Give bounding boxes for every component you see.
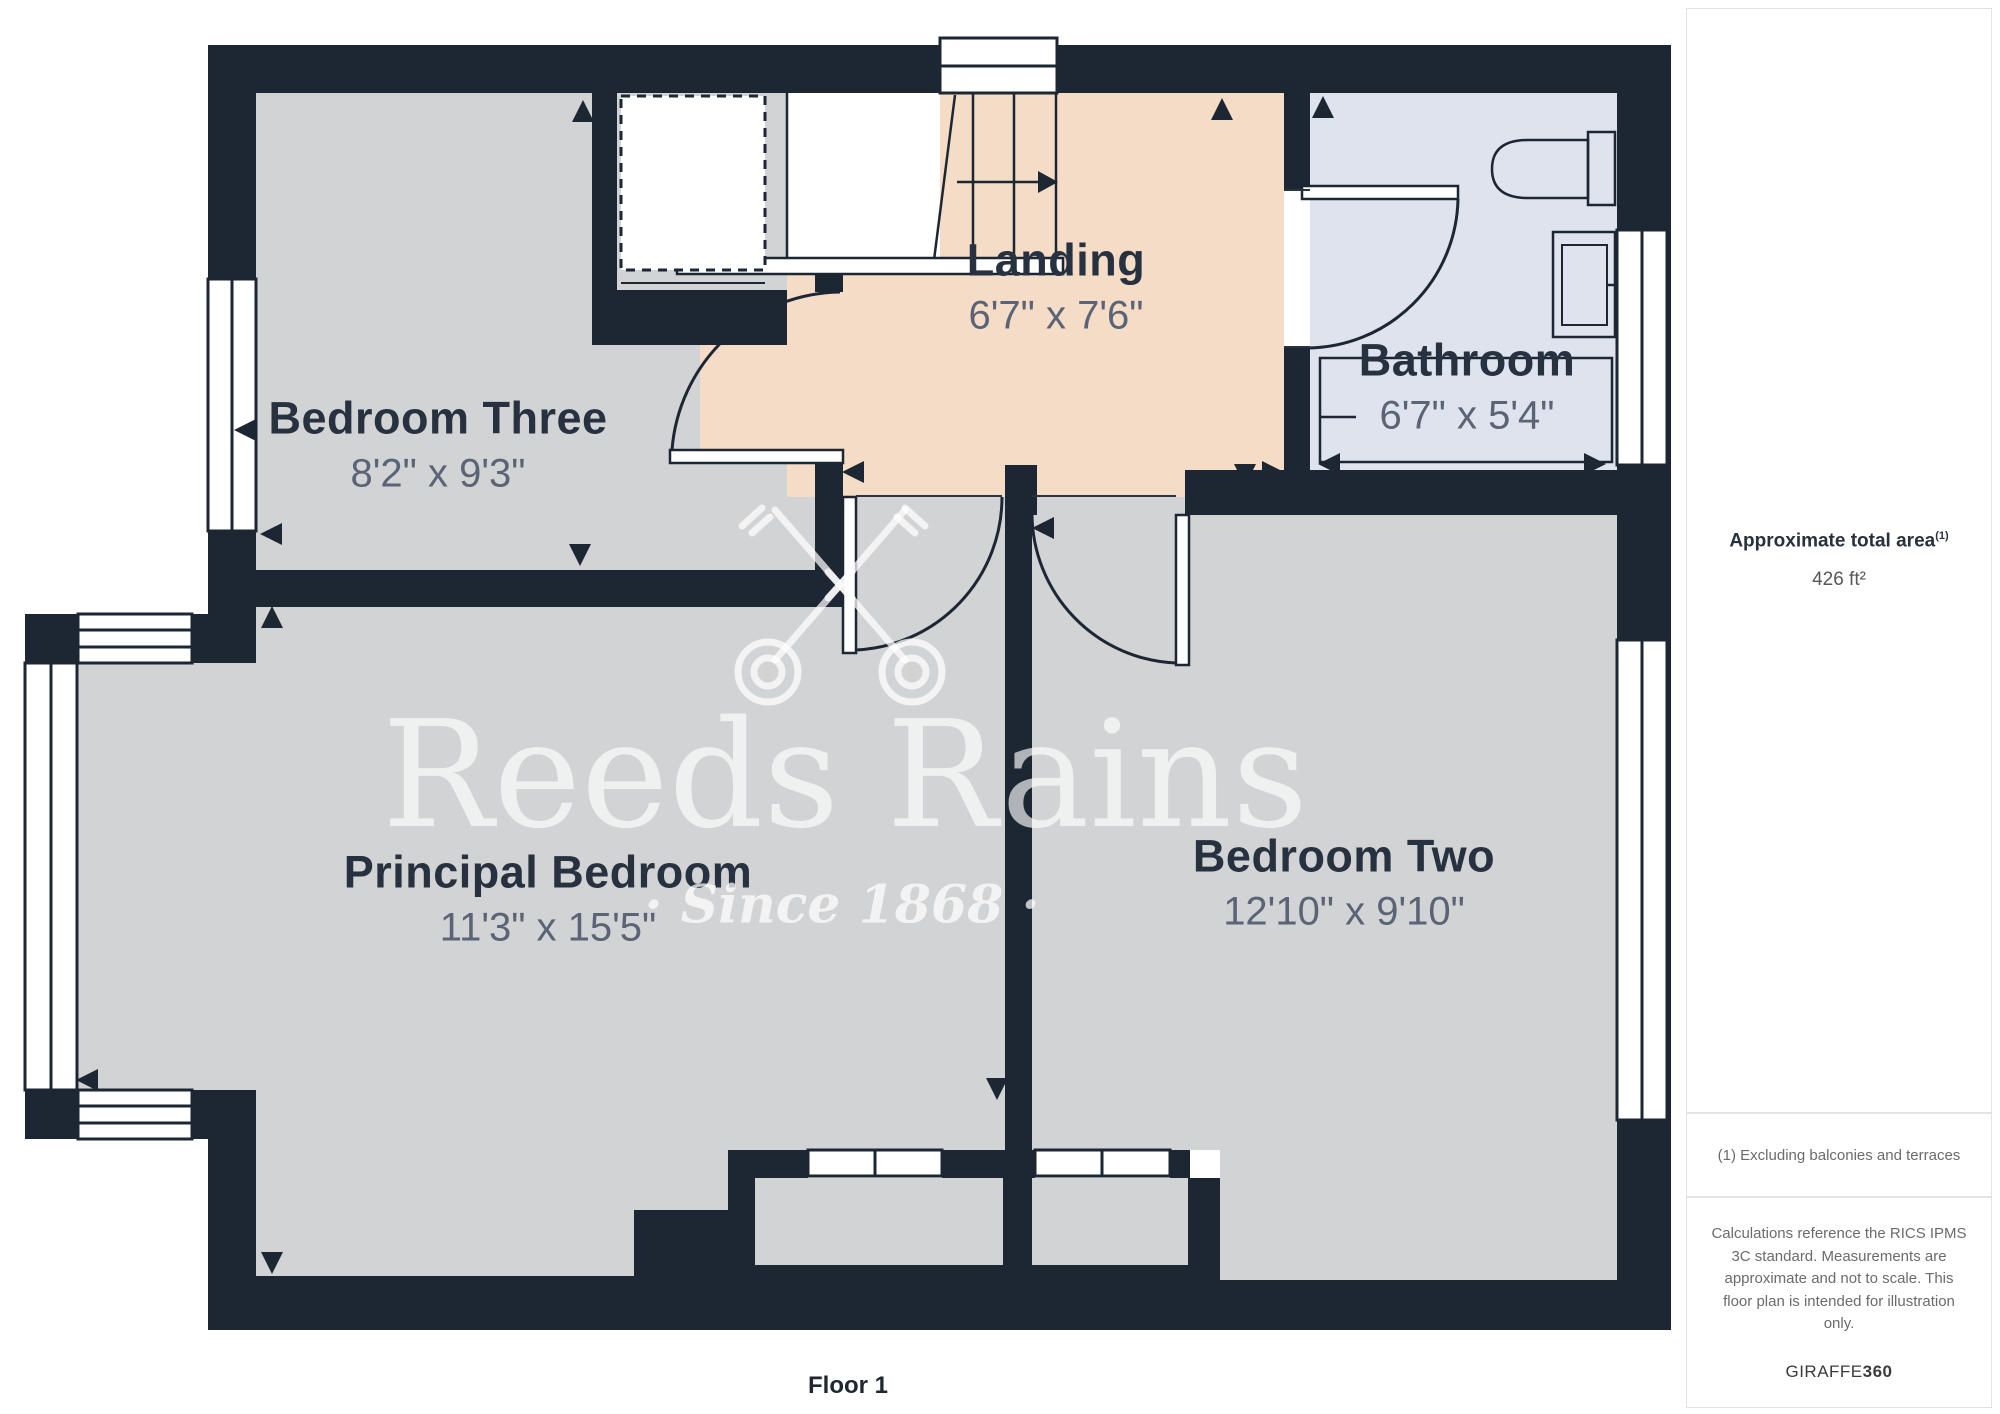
bay-floor <box>77 663 256 1090</box>
room-label-bathroom: Bathroom 6'7" x 5'4" <box>1359 335 1576 437</box>
footnote-text: (1) Excluding balconies and terraces <box>1700 1147 1979 1164</box>
stairwell-void <box>787 93 940 270</box>
disclaimer-text: Calculations reference the RICS IPMS 3C … <box>1708 1223 1970 1336</box>
room-dims: 6'7" x 5'4" <box>1359 393 1576 437</box>
room-name: Bathroom <box>1359 335 1576 385</box>
area-value: 426 ft² <box>1812 569 1866 591</box>
window-alcove-right <box>1032 1178 1188 1265</box>
room-label-bedroom-two: Bedroom Two 12'10" x 9'10" <box>1193 831 1495 933</box>
giraffe360-logo: GIRAFFE360 <box>1785 1362 1892 1382</box>
floorplan-page: Bedroom Three 8'2" x 9'3" Landing 6'7" x… <box>0 0 2000 1414</box>
sidebar-area-panel: Approximate total area(1) 426 ft² <box>1686 8 1992 1113</box>
window-principal-bottom <box>808 1150 942 1176</box>
giraffe360-logo-suffix: 360 <box>1863 1362 1893 1381</box>
sidebar-footnote-panel: (1) Excluding balconies and terraces <box>1686 1113 1992 1197</box>
room-dims: 12'10" x 9'10" <box>1193 889 1495 933</box>
room-label-principal-bedroom: Principal Bedroom 11'3" x 15'5" <box>344 847 753 949</box>
window-bedroom-two-bottom <box>1035 1150 1170 1176</box>
bedroom-divider-wall <box>1005 494 1032 1178</box>
window-alcove-left <box>755 1178 1003 1265</box>
bedroom-three-south-wall <box>208 570 843 607</box>
room-dims: 6'7" x 7'6" <box>967 293 1145 337</box>
area-title-text: Approximate total area <box>1729 531 1935 552</box>
area-note-marker: (1) <box>1935 530 1948 542</box>
bathroom-south-wall <box>1185 470 1671 515</box>
window-bedroom-two-right <box>1617 640 1667 1120</box>
closet <box>621 96 765 283</box>
room-name: Principal Bedroom <box>344 847 753 897</box>
sidebar-disclaimer-panel: Calculations reference the RICS IPMS 3C … <box>1686 1197 1992 1408</box>
window-bay-bottom <box>78 1090 192 1139</box>
room-name: Landing <box>967 235 1145 285</box>
window-bay-left <box>25 663 77 1090</box>
floor-label: Floor 1 <box>808 1372 888 1400</box>
window-bathroom-right <box>1617 230 1667 465</box>
giraffe360-logo-prefix: GIRAFFE <box>1785 1362 1862 1381</box>
bedroom-three-floor <box>256 93 592 570</box>
window-bedroom-three-left <box>208 279 256 531</box>
room-label-landing: Landing 6'7" x 7'6" <box>967 235 1145 337</box>
room-name: Bedroom Two <box>1193 831 1495 881</box>
area-title: Approximate total area(1) <box>1729 530 1948 552</box>
room-name: Bedroom Three <box>268 393 607 443</box>
room-dims: 8'2" x 9'3" <box>268 451 607 495</box>
bedroom-two-floor <box>1032 497 1617 1150</box>
room-label-bedroom-three: Bedroom Three 8'2" x 9'3" <box>268 393 607 495</box>
room-dims: 11'3" x 15'5" <box>344 905 753 949</box>
window-stairs-top <box>940 38 1057 93</box>
window-bay-top <box>78 614 192 663</box>
